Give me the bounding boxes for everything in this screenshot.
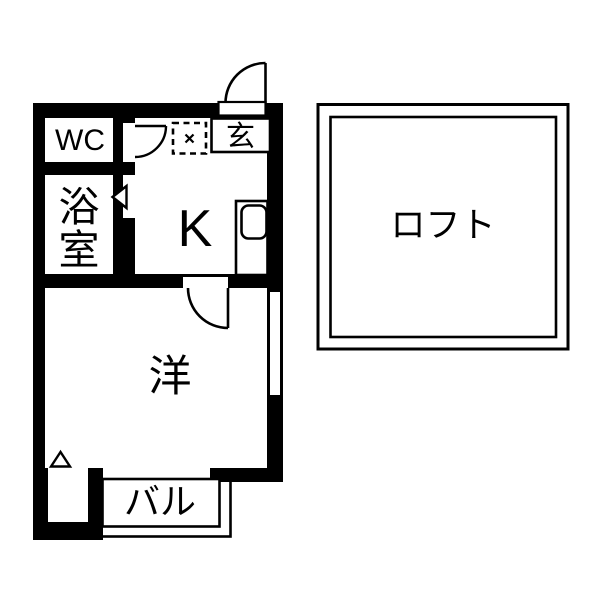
- entrance-threshold: [219, 102, 266, 116]
- kitchen-sink: [236, 201, 268, 275]
- balcony-label: バル: [124, 481, 196, 522]
- wc-label: WC: [55, 124, 105, 157]
- bath-label-char1: 浴: [59, 184, 100, 230]
- sink-basin: [242, 206, 267, 239]
- entrance-label: 玄: [226, 120, 255, 153]
- window-outer-line: [280, 292, 283, 395]
- wall-nook-right: [88, 468, 103, 540]
- western-room-label: 洋: [149, 353, 192, 401]
- kitchen-label: K: [178, 200, 213, 258]
- window-inner-line: [267, 292, 270, 395]
- bath-label-char2: 室: [59, 227, 100, 273]
- washing-machine-area: [173, 123, 206, 154]
- wc-door-niche: [123, 123, 135, 162]
- floor-plan-page: WC 浴 室 K 玄 洋 バル ロフト: [0, 0, 600, 600]
- floor-plan-svg: WC 浴 室 K 玄 洋 バル ロフト: [0, 0, 600, 600]
- loft-label: ロフト: [390, 206, 495, 245]
- wall-wc-bath: [45, 162, 113, 175]
- left-nook: [48, 468, 88, 522]
- kitchen-room-door-opening: [183, 277, 228, 288]
